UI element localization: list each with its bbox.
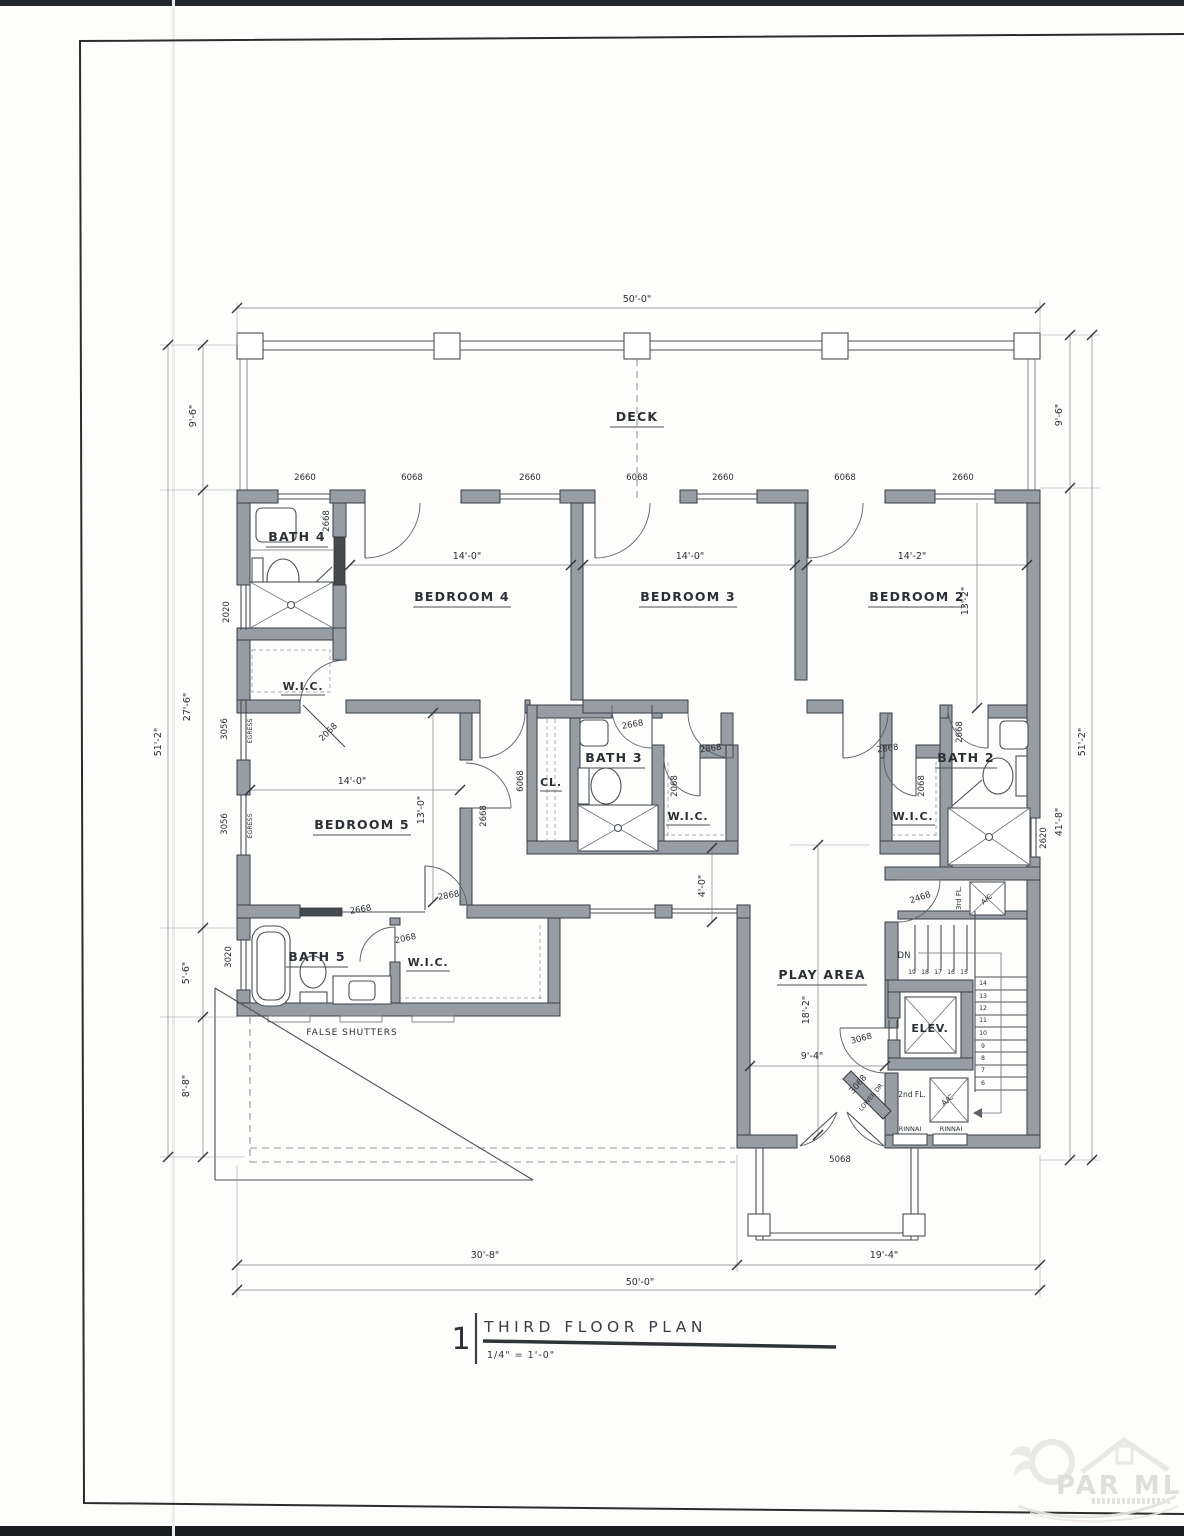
tread-number: 16	[947, 969, 955, 976]
label-closet: CL.	[540, 776, 562, 789]
tread-number: 8	[981, 1055, 985, 1062]
dim-hall: 4'-0"	[697, 875, 708, 898]
tag-door-5068: 5068	[829, 1155, 851, 1165]
dim-deck-depth-right: 9'-6"	[1054, 404, 1065, 427]
tag-window-3020: 3020	[224, 946, 234, 968]
label-bath-5: BATH 5	[288, 949, 345, 964]
title-block: 1 THIRD FLOOR PLAN 1/4" = 1'-0"	[451, 1313, 836, 1364]
tag-door-2068: 2068	[317, 721, 339, 743]
note-3rd-fl: 3rd FL.	[955, 886, 963, 910]
tread-number: 17	[934, 969, 942, 976]
watermark-brand: PAR MLS	[1056, 1471, 1184, 1501]
tag-window-2620: 2620	[1039, 827, 1049, 849]
tag-door-2468: 2468	[909, 890, 933, 906]
note-rinnai-2: RINNAI	[940, 1125, 963, 1133]
note-false-shutters: FALSE SHUTTERS	[306, 1028, 397, 1038]
label-bedroom-3: BEDROOM 3	[640, 589, 736, 604]
scanned-sheet: PAR MLS	[0, 0, 1184, 1536]
sheet-number: 1	[451, 1322, 470, 1357]
tread-number: 19	[908, 969, 916, 976]
tag-window-2660: 2660	[952, 473, 974, 483]
label-wic-bath4: W.I.C.	[283, 680, 324, 693]
tag-door-2868: 2868	[437, 889, 460, 903]
tread-number: 10	[979, 1030, 987, 1037]
toilet-icon	[578, 768, 589, 804]
tag-door-6068: 6068	[834, 473, 856, 483]
dim-overall-width: 50'-0"	[623, 294, 652, 305]
dim-left-overall: 51'-2"	[153, 728, 164, 757]
dim-bed2-width: 14'-2"	[898, 551, 927, 562]
tag-window-3056: 3056	[220, 813, 230, 835]
tread-number: 14	[979, 980, 987, 987]
tag-door-2668: 2668	[349, 903, 372, 917]
dim-right-main: 41'-8"	[1054, 808, 1065, 837]
rinnai-heater-icon	[893, 1134, 927, 1145]
note-rinnai-1: RINNAI	[899, 1125, 922, 1133]
note-egress: EGRESS	[247, 814, 254, 839]
tag-window-3056: 3056	[220, 718, 230, 740]
label-wic-bath5: W.I.C.	[408, 956, 449, 969]
label-wic-bed2: W.I.C.	[893, 810, 934, 823]
label-bedroom-5: BEDROOM 5	[314, 817, 410, 832]
dim-bed4-width: 14'-0"	[453, 551, 482, 562]
toilet-icon	[1016, 756, 1027, 796]
tread-number: 6	[981, 1080, 985, 1087]
tag-window-2660: 2660	[712, 473, 734, 483]
label-bath-3: BATH 3	[585, 750, 642, 765]
dim-right-overall: 51'-2"	[1077, 728, 1088, 757]
watermark-logo: PAR MLS	[1010, 1440, 1184, 1521]
tread-number: 9	[981, 1043, 985, 1050]
floor-plan-drawing: PAR MLS	[0, 0, 1184, 1536]
tag-door-2068: 2068	[670, 775, 680, 797]
label-wic-bed3: W.I.C.	[668, 810, 709, 823]
dim-bottom-overall: 50'-0"	[626, 1277, 655, 1288]
tag-door-2668: 2668	[621, 718, 644, 732]
tread-number: 12	[979, 1005, 987, 1012]
drawing-title: THIRD FLOOR PLAN	[483, 1318, 707, 1336]
note-dn: DN	[898, 951, 911, 961]
note-2nd-fl: 2nd FL.	[898, 1090, 926, 1099]
label-bedroom-4: BEDROOM 4	[414, 589, 510, 604]
dim-bed5-depth: 13'-0"	[416, 796, 427, 825]
tag-door-2668: 2668	[322, 510, 332, 532]
tag-door-2668: 2668	[479, 805, 489, 827]
dim-play-depth: 18'-2"	[801, 996, 812, 1025]
tag-door-6068: 6068	[401, 473, 423, 483]
tag-window-2020: 2020	[222, 601, 232, 623]
drawing-scale: 1/4" = 1'-0"	[487, 1350, 555, 1361]
tread-number: 11	[979, 1017, 987, 1024]
tag-door-2068: 2068	[917, 775, 927, 797]
tag-window-2660: 2660	[294, 473, 316, 483]
tag-door-2068: 2068	[394, 932, 417, 946]
dim-bottom-left: 30'-8"	[471, 1250, 500, 1261]
sink-icon	[1000, 721, 1028, 749]
tread-number: 13	[979, 993, 987, 1000]
rinnai-heater-icon	[933, 1134, 967, 1145]
tread-number: 18	[921, 969, 929, 976]
tread-number: 7	[981, 1067, 985, 1074]
tag-door-2868: 2868	[876, 743, 899, 756]
dim-left-mid: 27'-6"	[182, 693, 193, 722]
dim-left-roof: 8'-8"	[181, 1075, 192, 1098]
label-bath-2: BATH 2	[937, 750, 994, 765]
label-bath-4: BATH 4	[268, 529, 325, 544]
dim-play-width: 9'-4"	[801, 1051, 824, 1062]
sink-icon	[580, 720, 608, 746]
label-elevator: ELEV.	[911, 1022, 948, 1035]
dim-deck-depth-left: 9'-6"	[188, 405, 199, 428]
roof-outline	[215, 988, 735, 1180]
dim-bottom-right: 19'-4"	[870, 1250, 899, 1261]
tread-number: 15	[960, 969, 968, 976]
tag-door-3068: 3068	[850, 1031, 873, 1046]
dim-bed3-width: 14'-0"	[676, 551, 705, 562]
label-play-area: PLAY AREA	[778, 967, 865, 982]
dim-left-bath5: 5'-6"	[181, 962, 192, 985]
tag-door-6068: 6068	[626, 473, 648, 483]
dim-bed5-width: 14'-0"	[338, 776, 367, 787]
tag-door-6068-closet: 6068	[516, 770, 526, 792]
note-egress: EGRESS	[247, 719, 254, 744]
tag-window-2660: 2660	[519, 473, 541, 483]
label-bedroom-2: BEDROOM 2	[869, 589, 965, 604]
label-deck: DECK	[616, 409, 659, 424]
tag-door-2668: 2668	[955, 721, 965, 743]
